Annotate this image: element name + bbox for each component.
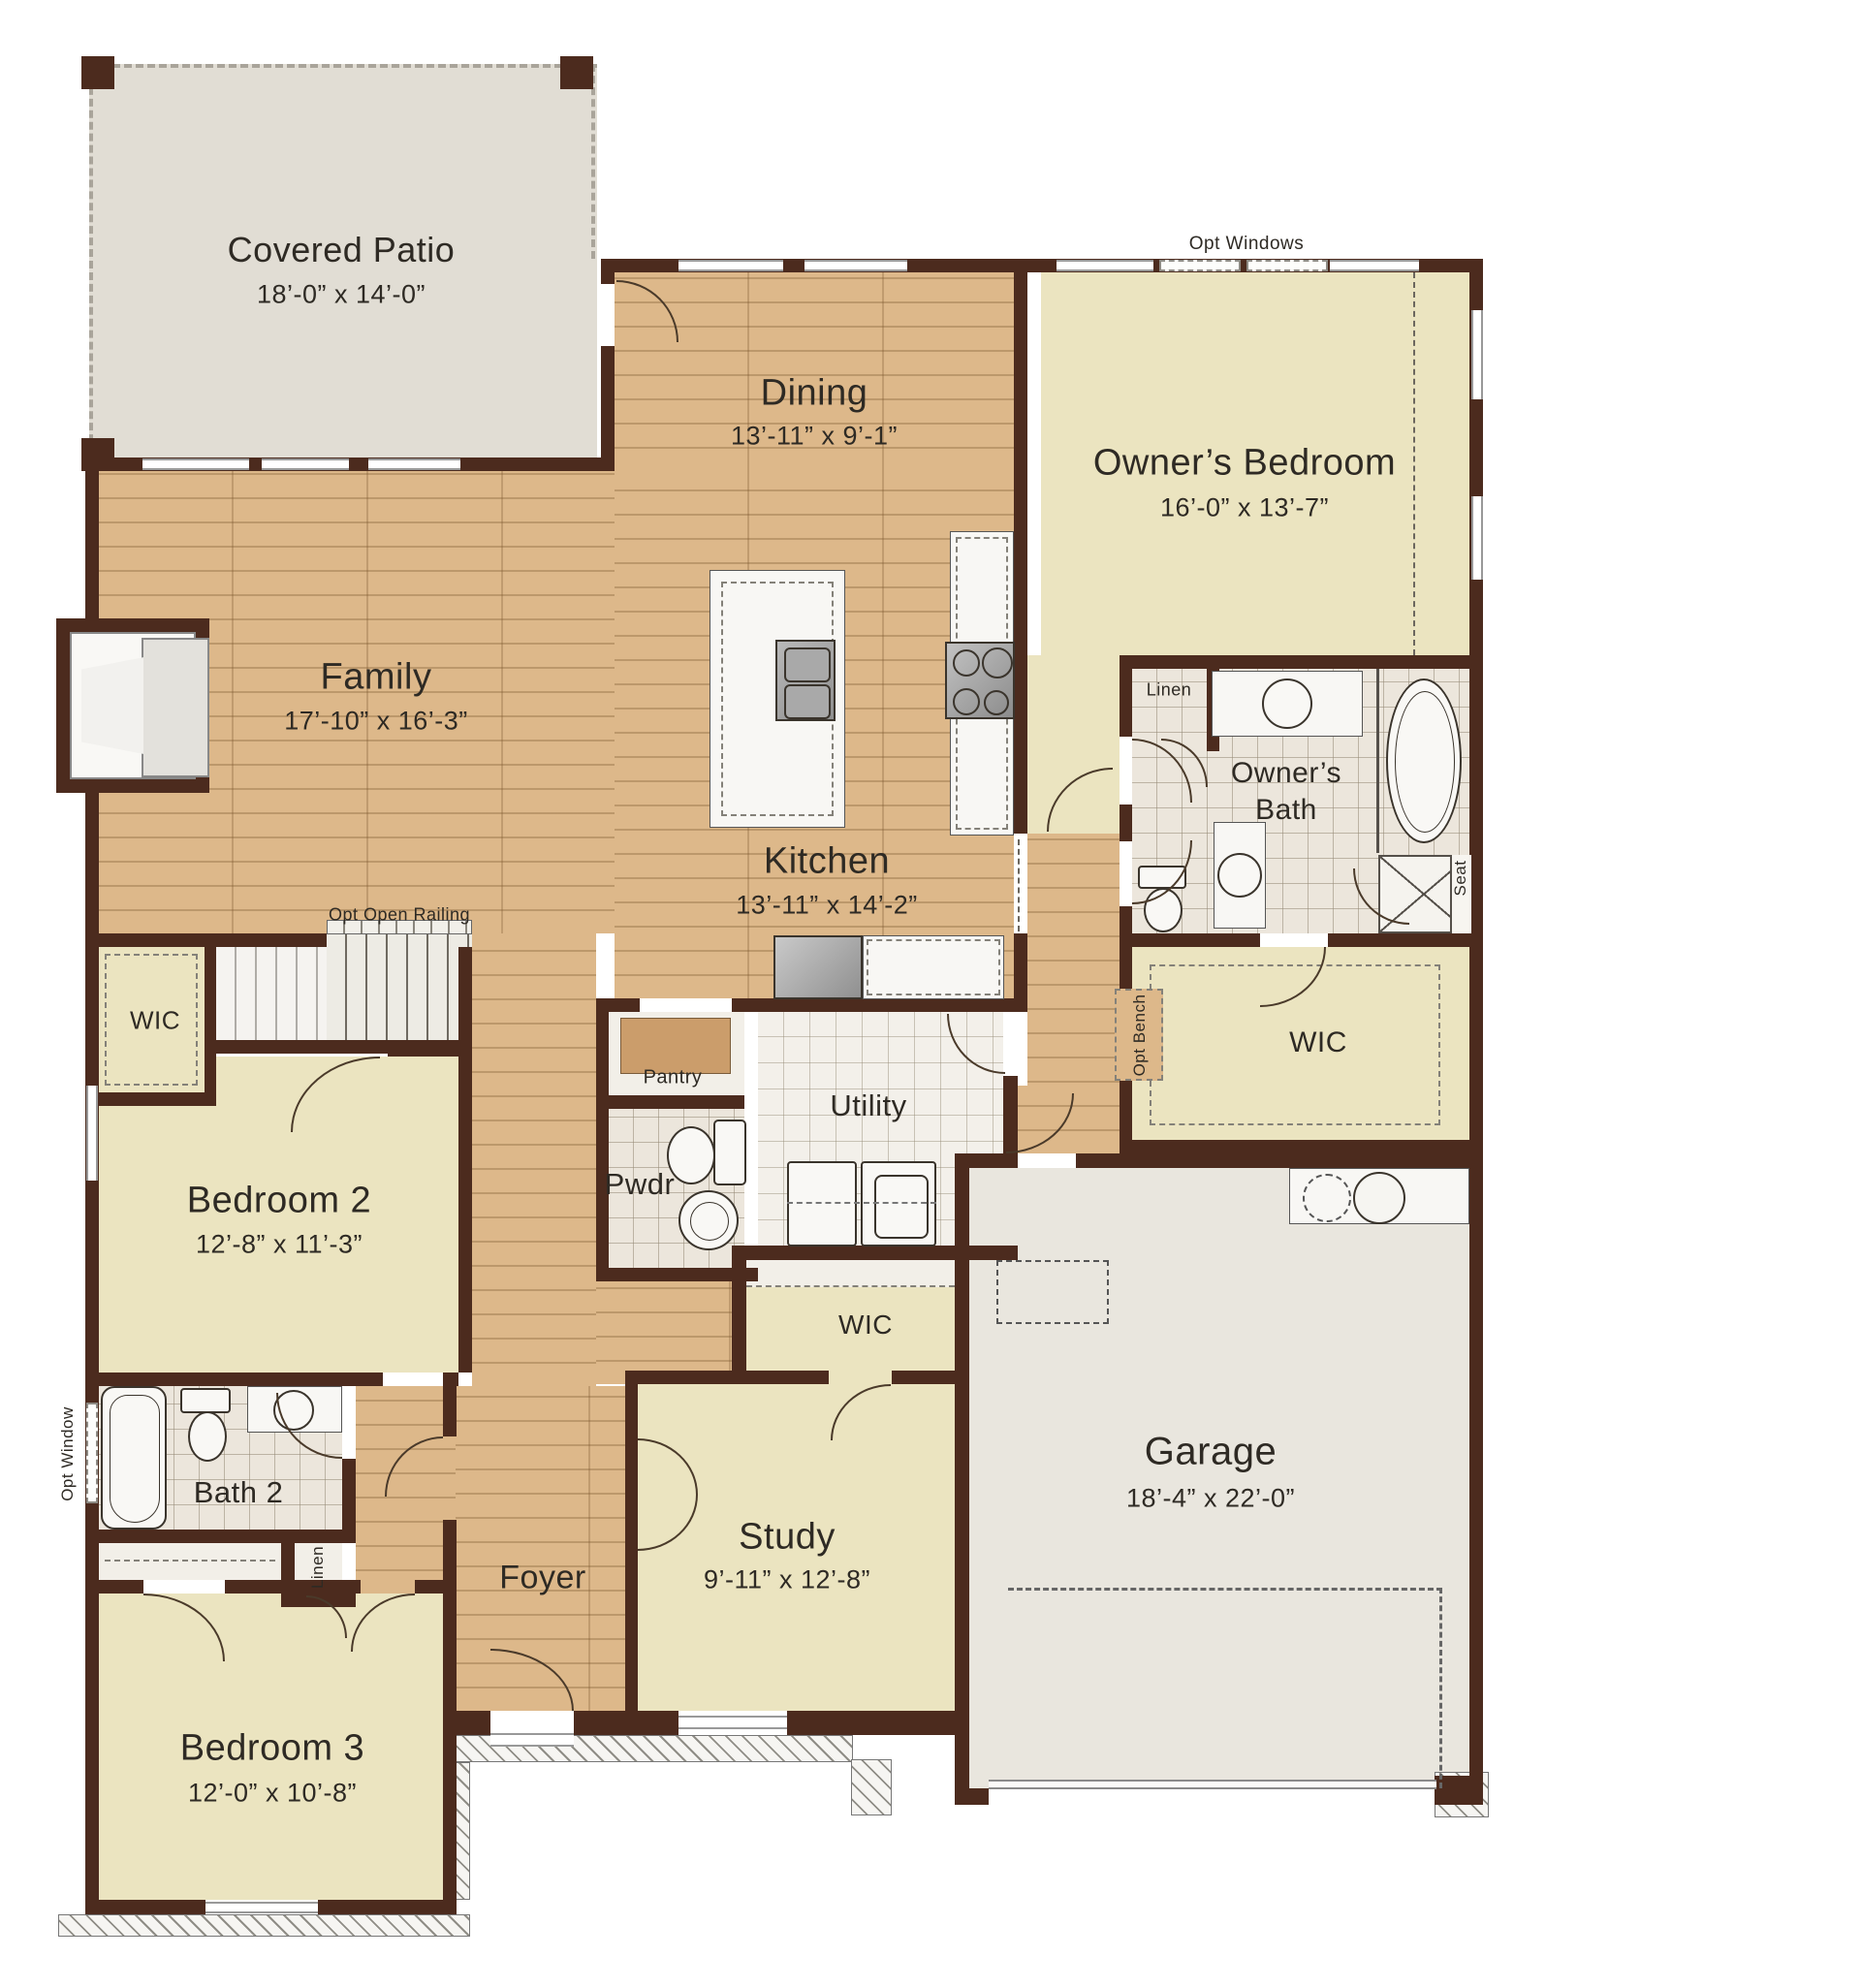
label-foyer: Foyer [499,1560,585,1597]
wall [99,1580,143,1594]
wall [609,998,640,1012]
wall [99,1373,383,1386]
label-linen-owners: Linen [1147,680,1192,701]
wall [1120,655,1132,737]
water-heater-opt [1303,1174,1351,1222]
wall [892,1371,955,1384]
wall [1328,933,1469,947]
wall [601,346,615,471]
label-bedroom3: Bedroom 3 [180,1728,364,1770]
wall [458,1043,472,1373]
wall [443,1594,457,1914]
garage-opt-apron [1008,1588,1442,1788]
patio-post [560,56,593,89]
wall [625,1371,829,1384]
patio-post [81,56,114,89]
window [142,458,249,470]
wall [99,1530,356,1543]
wall [625,1384,638,1711]
label-pwdr: Pwdr [605,1167,676,1202]
window [262,458,349,470]
sink [678,1190,739,1250]
stairs-lower-flight [216,947,327,1040]
firebox [81,655,143,756]
label-study-dims: 9’-11” x 12’-8” [704,1565,870,1595]
wall [443,1711,490,1735]
owners-tub [1386,678,1462,843]
window [205,1902,318,1913]
label-garage: Garage [1145,1431,1277,1474]
patio-screen-edge [587,64,595,259]
wall [1120,1081,1132,1153]
wall [85,1900,205,1914]
window [1471,310,1483,399]
label-family: Family [321,657,432,699]
bedroom3-closet-shelf [105,1560,275,1563]
wall [1014,272,1027,834]
label-family-dims: 17’-10” x 16’-3” [284,707,468,737]
wall [955,1153,1003,1168]
wall [955,1788,989,1805]
label-owners-bedroom-dims: 16’-0” x 13’-7” [1160,493,1329,523]
patio-post [81,438,114,471]
label-wic-bedroom2: WIC [130,1006,180,1036]
label-opt-open-railing: Opt Open Railing [329,905,470,926]
hall-study [596,1281,746,1384]
wall [1076,1153,1469,1168]
fireplace-hearth [142,638,209,777]
window [86,1086,98,1181]
wall [609,1095,744,1109]
label-pantry: Pantry [644,1067,703,1089]
garage-opt-feature [996,1260,1109,1324]
front-door-sill [490,1733,574,1747]
label-bedroom3-dims: 12’-0” x 10’-8” [188,1779,357,1809]
wall [446,1373,458,1386]
sink [1217,853,1262,898]
porch-bottom-band [58,1914,470,1937]
kitchen-hall-opt-line [1018,839,1022,931]
bathtub [101,1386,167,1530]
wall [787,1711,969,1735]
wall [1469,259,1483,1805]
room-foyer [456,1386,638,1711]
wall [1120,655,1469,669]
label-bedroom2-dims: 12’-8” x 11’-3” [196,1230,363,1260]
refrigerator [773,935,863,999]
wall [732,998,1018,1012]
window [1471,496,1483,580]
wall [732,1246,746,1384]
window [804,260,907,271]
label-kitchen-dims: 13’-11” x 14’-2” [736,891,918,921]
label-opt-windows: Opt Windows [1189,234,1304,255]
utility-counter-line [787,1202,936,1206]
label-utility: Utility [830,1089,906,1123]
wall [596,998,609,1281]
label-seat: Seat [1451,861,1470,897]
front-porch-corner [851,1759,892,1815]
wall [625,1711,678,1735]
wall [99,1092,205,1106]
label-bedroom2: Bedroom 2 [187,1181,371,1222]
label-owners-bath-2: Bath [1255,794,1317,827]
wall [415,1580,456,1594]
wall [1120,906,1132,989]
wall [225,1580,361,1594]
toilet-tank [713,1120,746,1185]
cooktop [945,642,1015,719]
pantry-shelf [620,1018,731,1074]
label-opt-bench: Opt Bench [1130,994,1150,1077]
hall-main [472,933,596,1386]
double-sink [775,640,836,721]
sink [1262,678,1312,729]
window [368,458,460,470]
window [678,1716,787,1729]
floor-plan: Covered Patio 18’-0” x 14’-0” Dining 13’… [0,0,1861,1988]
toilet-tank [180,1388,231,1413]
wall [732,1246,1018,1260]
wall [205,947,216,1106]
owners-bedroom-opt-line [1413,272,1417,655]
wall [99,933,327,947]
label-opt-window: Opt Window [58,1406,78,1501]
water-heater [1353,1172,1405,1224]
stairs-upper-flight [327,933,472,1040]
wall [1120,805,1132,841]
wall [458,947,472,1043]
label-kitchen: Kitchen [764,841,890,883]
label-study: Study [739,1517,836,1559]
opt-window [86,1403,98,1503]
wall [955,1168,969,1805]
wall [601,259,615,284]
window [678,260,783,271]
label-covered-patio: Covered Patio [228,230,456,270]
wall [318,1900,457,1914]
label-linen-hall: Linen [308,1546,328,1589]
label-dining: Dining [761,373,868,415]
opt-window [1246,260,1328,271]
wall [1132,1140,1469,1153]
wall [216,1040,472,1054]
garage-door [989,1780,1436,1789]
label-covered-patio-dims: 18’-0” x 14’-0” [257,280,426,310]
label-dining-dims: 13’-11” x 9’-1” [731,422,898,452]
window [1057,260,1153,271]
label-owners-bath-1: Owner’s [1231,757,1341,790]
label-garage-dims: 18’-4” x 22’-0” [1126,1484,1295,1514]
tub-deck-line [1376,669,1379,853]
opt-window [1159,260,1241,271]
base-counter-cabinets [867,939,1000,995]
wic-study-shelf [746,1260,955,1287]
label-owners-bedroom: Owner’s Bedroom [1093,443,1396,485]
wall [596,1268,758,1281]
label-wic-study: WIC [838,1310,893,1341]
wall [1132,933,1260,947]
label-bath2: Bath 2 [194,1475,284,1510]
toilet [188,1411,227,1462]
window [1330,260,1419,271]
label-owners-wic: WIC [1289,1026,1347,1059]
